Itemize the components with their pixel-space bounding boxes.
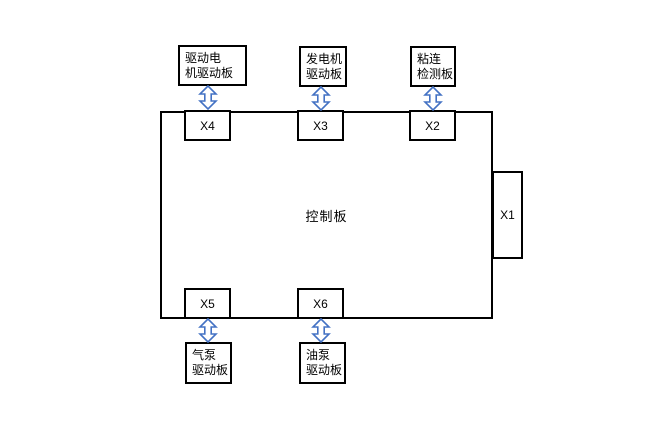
x5-updown-arrow-icon <box>198 318 218 343</box>
x3-updown-arrow-icon <box>311 86 331 111</box>
oil-pump-driver-board-label: 油泵 驱动板 <box>306 348 342 378</box>
x2-updown-arrow-icon <box>423 86 443 111</box>
adhesion-detection-board-label: 粘连 检测板 <box>417 52 453 82</box>
control-board-label: 控制板 <box>305 206 347 225</box>
air-pump-driver-board-label: 气泵 驱动板 <box>192 348 228 378</box>
drive-motor-driver-board-box: 驱动电 机驱动板 <box>178 45 247 86</box>
oil-pump-driver-board-box: 油泵 驱动板 <box>299 342 346 384</box>
port-x4-label: X4 <box>200 119 215 133</box>
port-x2-label: X2 <box>425 119 440 133</box>
port-x2-box: X2 <box>409 110 456 141</box>
port-x3-label: X3 <box>313 119 328 133</box>
port-x6-label: X6 <box>313 297 328 311</box>
port-x4-box: X4 <box>184 110 231 141</box>
port-x1-label: X1 <box>500 208 515 222</box>
port-x5-box: X5 <box>184 288 231 319</box>
x6-updown-arrow-icon <box>311 318 331 343</box>
x4-updown-arrow-icon <box>198 85 218 110</box>
generator-driver-board-label: 发电机 驱动板 <box>306 52 342 82</box>
block-diagram: 控制板 X1 X2 X3 X4 X5 X6 驱动电 机驱动板 发电机 驱动板 粘… <box>0 0 670 440</box>
drive-motor-driver-board-label: 驱动电 机驱动板 <box>185 51 233 81</box>
port-x5-label: X5 <box>200 297 215 311</box>
air-pump-driver-board-box: 气泵 驱动板 <box>185 342 232 384</box>
adhesion-detection-board-box: 粘连 检测板 <box>410 46 456 87</box>
port-x6-box: X6 <box>297 288 344 319</box>
port-x1-box: X1 <box>492 171 523 259</box>
generator-driver-board-box: 发电机 驱动板 <box>299 46 347 87</box>
port-x3-box: X3 <box>297 110 344 141</box>
